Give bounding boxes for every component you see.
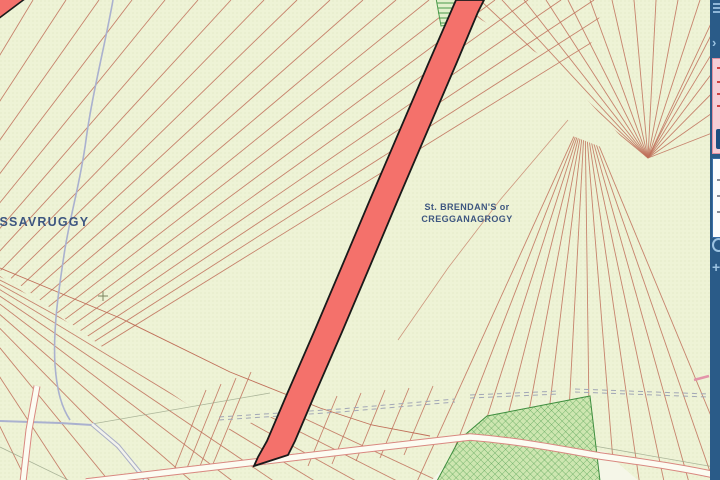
- panel-button[interactable]: [716, 129, 720, 149]
- plus-icon[interactable]: +: [712, 260, 720, 274]
- map-canvas[interactable]: LISSAVRUGGY St. BRENDAN'S or CREGGANAGRO…: [0, 0, 720, 480]
- parish-label-line2: CREGGANAGROGY: [421, 214, 512, 224]
- menu-icon[interactable]: [713, 3, 720, 15]
- chevron-right-icon[interactable]: ›: [712, 36, 716, 49]
- rotate-icon[interactable]: [712, 238, 720, 252]
- white-panel-partial: [712, 158, 720, 238]
- pink-panel-partial: [712, 58, 720, 154]
- map-viewer: LISSAVRUGGY St. BRENDAN'S or CREGGANAGRO…: [0, 0, 720, 480]
- townland-label: LISSAVRUGGY: [0, 215, 89, 229]
- parish-label-line1: St. BRENDAN'S or: [424, 202, 509, 212]
- right-sidebar: › +: [710, 0, 720, 480]
